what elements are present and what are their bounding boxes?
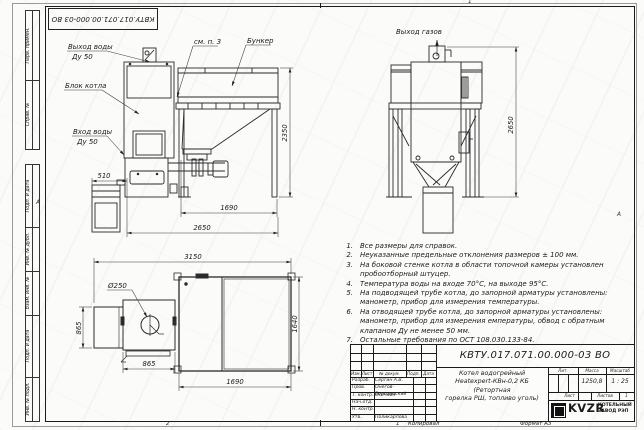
footer-format-label: Формат А3 <box>520 421 551 427</box>
technical-notes: 1. Все размеры для справок. 2. Неуказанн… <box>340 242 632 345</box>
sheet-label: Лист <box>548 392 591 399</box>
title-designation: КВТУ.017.071.00.000-03 ВО <box>437 345 633 367</box>
dim-865-left: 865 <box>75 322 83 335</box>
kvzr-logo-caption: КОТЕЛЬНЫЙ ЗАВОД РЭП <box>598 403 632 414</box>
dim-865-bottom: 865 <box>143 360 156 368</box>
dim-3150: 3150 <box>184 253 201 261</box>
dim-1640: 1640 <box>291 315 299 332</box>
footer-copied-label: Копировал <box>408 421 439 427</box>
label-diameter-250: Ø250 <box>107 282 127 290</box>
row-role-nkontr: Н. контр. <box>352 406 374 413</box>
dim-1690-plan: 1690 <box>226 378 243 386</box>
note-4: 4. Температура воды на входе 70°С, на вы… <box>340 280 632 289</box>
row-name-tkontr: Осечкин <box>375 392 413 399</box>
hdr-sign: Подп. <box>406 370 421 377</box>
dim-2650-front: 2650 <box>193 224 210 232</box>
hdr-date: Дата <box>421 370 436 377</box>
sheets-label: Листов <box>591 392 619 399</box>
row-role-razrab: Разраб. <box>352 377 374 384</box>
kvzr-logo-icon <box>551 403 566 418</box>
front-view-dimensions <box>92 68 293 237</box>
label-see-note-3: см. п. 3 <box>194 38 221 46</box>
scale-label: Масштаб <box>606 367 634 374</box>
label-water-outlet: Выход воды <box>68 43 113 51</box>
cyclone-view-linework <box>386 40 484 233</box>
front-view-linework <box>92 48 280 232</box>
scale-value: 1 : 25 <box>606 378 634 385</box>
row-name-utv: Поликарпова <box>375 414 413 421</box>
row-name-razrab: Сергин А.В. <box>375 377 413 384</box>
mass-label: Масса <box>578 367 606 374</box>
row-role-tkontr: Т. контр. <box>352 392 374 399</box>
note-5: 5. На подводящей трубе котла, до запорно… <box>340 289 632 308</box>
label-gas-outlet: Выход газов <box>396 28 442 36</box>
note-3: 3. На боковой стенке котла в области топ… <box>340 261 632 280</box>
row-role-prov: Пров. <box>352 384 374 391</box>
lit-label: Лит. <box>548 367 578 374</box>
label-water-inlet: Вход воды <box>73 128 113 136</box>
title-description: Котел водогрейный Heatexpert-КВн-0,2 КБ … <box>437 370 547 404</box>
dim-2650-cyclone: 2650 <box>507 116 515 133</box>
label-water-outlet-dn: Ду 50 <box>71 53 93 61</box>
dim-1690-front: 1690 <box>220 204 237 212</box>
dim-2350: 2350 <box>281 124 289 141</box>
hdr-izm: Изм. <box>351 370 361 377</box>
hdr-list: Лист <box>361 370 373 377</box>
label-water-inlet-dn: Ду 50 <box>76 138 98 146</box>
row-role-nachotd: Нач.отд. <box>352 399 374 406</box>
drawing-sheet: 1 А А КВТУ.017.071.00.000-03 ВО Перв. пр… <box>0 0 644 430</box>
label-boiler-block: Блок котла <box>65 82 106 90</box>
dim-510: 510 <box>98 172 111 180</box>
footer-zone-1: 1 <box>396 421 400 427</box>
mass-value: 1250,8 <box>578 378 606 385</box>
note-6: 6. На отводящей трубе котла, до запорной… <box>340 308 632 336</box>
title-block: КВТУ.017.071.00.000-03 ВО Котел водогрей… <box>350 344 635 422</box>
label-bunker: Бункер <box>247 37 274 45</box>
note-2: 2. Неуказанные предельные отклонения раз… <box>340 251 632 260</box>
hdr-doc-num: № докум. <box>373 370 406 377</box>
footer-zone-2: 2 <box>166 421 170 427</box>
note-1: 1. Все размеры для справок. <box>340 242 632 251</box>
row-role-utv: Утв. <box>352 414 374 421</box>
sheets-value: 1 <box>619 392 634 399</box>
